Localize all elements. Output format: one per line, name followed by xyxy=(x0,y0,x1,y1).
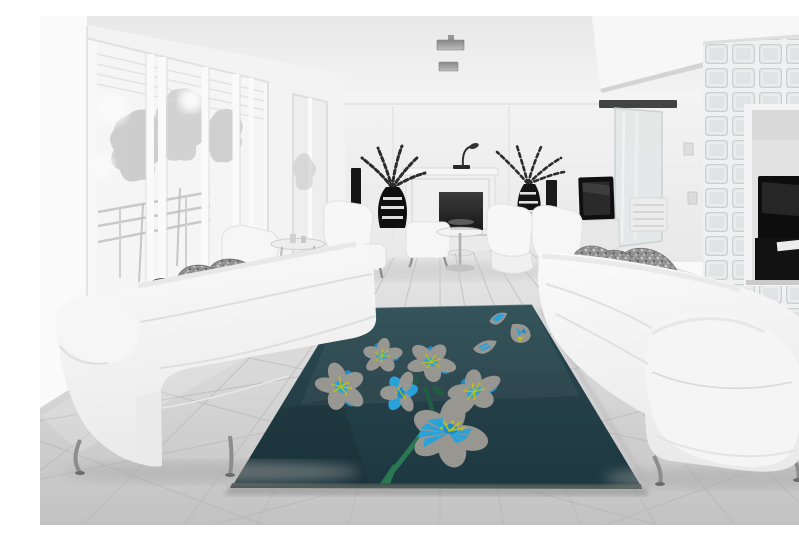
living-room-photo xyxy=(40,16,799,525)
vignette xyxy=(40,16,799,525)
